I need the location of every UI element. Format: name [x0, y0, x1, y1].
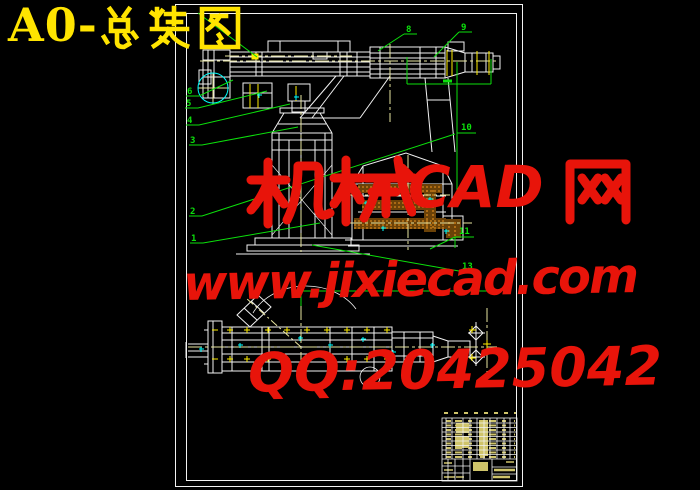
balloon-10: 10: [461, 124, 472, 132]
drawing-sheet: [0, 0, 700, 490]
title-block: [442, 413, 517, 481]
watermark-cjk-wang: [561, 152, 639, 234]
watermark-cjk-jixie: [246, 152, 416, 238]
watermark-cad-text: CAD: [408, 153, 544, 221]
sheet-title-latin: A0-: [8, 2, 98, 48]
balloon-8: 8: [406, 26, 411, 34]
glyph-zhuang: [152, 8, 187, 46]
sheet-title-cjk-glyphs: [98, 5, 242, 51]
balloon-2: 2: [190, 208, 195, 216]
glyph-zong: [104, 9, 136, 47]
balloon-3: 3: [190, 137, 195, 145]
balloon-1: 1: [191, 235, 196, 243]
glyph-tu: [202, 9, 238, 47]
balloon-9: 9: [461, 24, 466, 32]
sheet-title: A0-: [8, 2, 242, 51]
cad-screenshot: A0- CAD: [0, 0, 700, 490]
balloon-6: 6: [187, 88, 192, 96]
watermark-line2: www.jixiecad.com: [183, 248, 638, 312]
balloon-5: 5: [186, 100, 191, 108]
watermark-line1: CAD: [246, 152, 639, 238]
balloon-4: 4: [187, 117, 192, 125]
watermark-line3: QQ:20425042: [247, 334, 662, 404]
